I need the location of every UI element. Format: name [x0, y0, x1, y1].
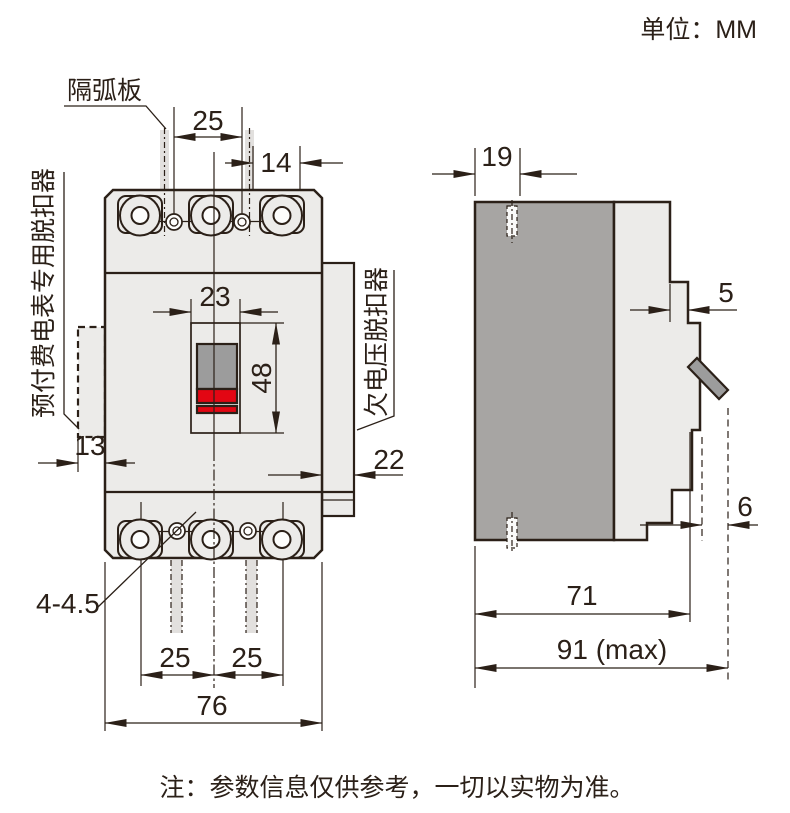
dim-handle-protrusion: 6 — [737, 491, 753, 522]
dim-depth: 71 — [566, 580, 597, 611]
dim-left-module-depth: 13 — [74, 430, 105, 461]
dimension-drawing-page: 25 14 23 48 13 22 25 25 — [0, 0, 790, 813]
mounting-holes-callout: 4-4.5 — [36, 588, 100, 619]
dim-handle-window-height: 48 — [246, 362, 277, 393]
dim-overall-width: 76 — [196, 690, 227, 721]
dim-pole-pitch-bottom-right: 25 — [231, 642, 262, 673]
unit-label: 单位：MM — [640, 16, 757, 44]
breaker-case-side-dark — [475, 202, 614, 540]
undervoltage-release-label: 欠电压脱扣器 — [363, 267, 391, 417]
prepaid-release-leader — [64, 172, 79, 429]
dim-pole-pitch-bottom-left: 25 — [159, 642, 190, 673]
note-text: 注：参数信息仅供参考，一切以实物为准。 — [159, 774, 634, 802]
dim-right-module-width: 22 — [373, 444, 404, 475]
breaker-case-side-cover — [614, 202, 700, 540]
handle-toggle-gray — [197, 344, 237, 389]
dim-escutcheon-step: 5 — [718, 277, 734, 308]
handle-red-strip — [197, 406, 237, 413]
front-view — [78, 107, 354, 688]
dim-handle-window-width: 23 — [199, 281, 230, 312]
handle-toggle-red — [197, 389, 237, 403]
dim-terminal-offset: 14 — [260, 147, 291, 178]
dim-pole-pitch-top: 25 — [192, 105, 223, 136]
undervoltage-release-module — [322, 263, 354, 516]
dim-top-slot: 19 — [481, 141, 512, 172]
arc-plate-leader — [64, 106, 166, 129]
prepaid-release-label: 预付费电表专用脱扣器 — [30, 168, 58, 418]
dim-depth-max: 91 (max) — [557, 634, 667, 665]
arc-plate-label: 隔弧板 — [67, 77, 142, 105]
breaker-dimension-drawing: 25 14 23 48 13 22 25 25 — [0, 0, 790, 813]
prepaid-release-module — [78, 327, 105, 437]
